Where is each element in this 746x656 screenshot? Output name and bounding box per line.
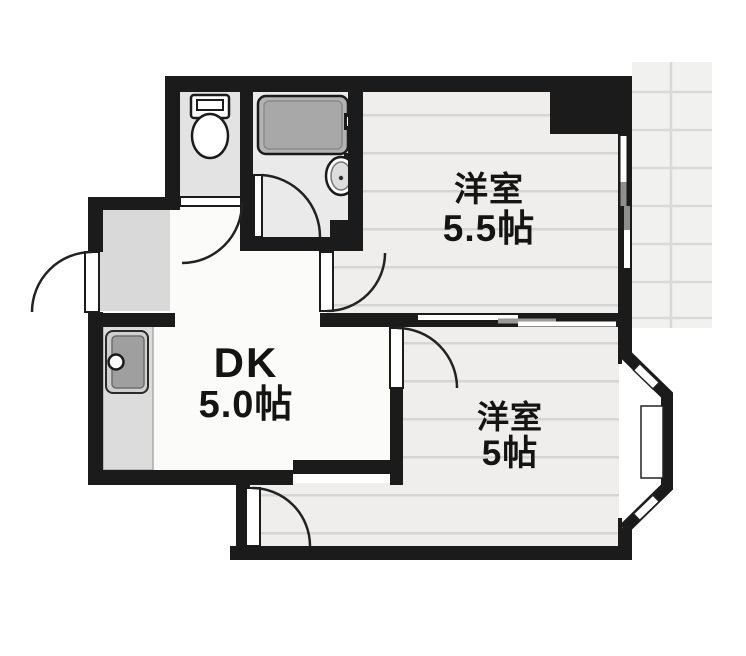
western-room-1-label: 洋室 5.5帖 — [383, 172, 595, 249]
kitchen-sink — [106, 331, 148, 393]
entrance-genkan — [100, 210, 170, 311]
western-room-2-label: 洋室 5帖 — [410, 400, 610, 472]
wall-bottom — [230, 546, 632, 560]
wall-wc-bath-divider — [240, 92, 253, 250]
wall-dk-bottom-right — [293, 460, 403, 474]
dining-kitchen-label: DK 5.0帖 — [146, 340, 346, 426]
wall-left-upper — [88, 197, 103, 252]
bay-window — [622, 353, 667, 529]
western-room-1-floor-ext — [330, 251, 366, 314]
sliding-window — [618, 132, 632, 272]
wall-bath-right — [348, 76, 363, 251]
passage-floor — [175, 310, 323, 330]
wall-pillar-top-right — [550, 76, 632, 134]
wall-below-genkan — [88, 313, 175, 327]
room-size: 5.0帖 — [146, 385, 346, 426]
room-name: 洋室 — [410, 400, 610, 435]
room-size: 5.5帖 — [383, 209, 595, 249]
room-name: 洋室 — [383, 172, 595, 209]
toilet — [191, 95, 229, 158]
sink-faucet — [109, 355, 124, 370]
balcony — [632, 62, 712, 328]
wall-right-mid — [618, 272, 632, 364]
bathtub — [258, 96, 358, 154]
floor-plan: 洋室 5.5帖 DK 5.0帖 洋室 5帖 — [0, 0, 746, 656]
bay-window-center-pane — [641, 406, 663, 478]
wall-dk-bottom — [88, 470, 293, 485]
wall-left-lower — [88, 312, 103, 485]
room-size: 5帖 — [410, 435, 610, 473]
room-name: DK — [146, 340, 346, 385]
wall-toilet-left — [165, 76, 180, 210]
entrance-door — [32, 252, 99, 312]
floor-plan-drawing — [0, 0, 746, 656]
